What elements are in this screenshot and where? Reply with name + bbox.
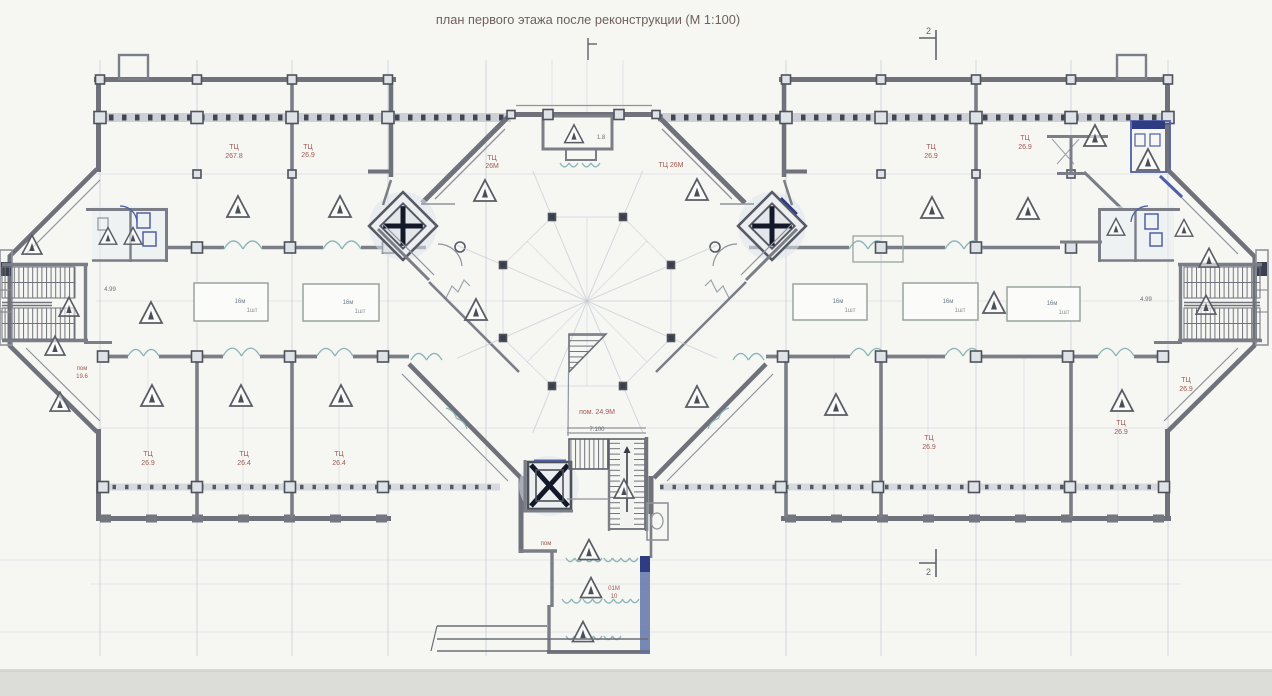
svg-text:26.4: 26.4 xyxy=(332,460,346,467)
svg-text:19.6: 19.6 xyxy=(76,374,88,380)
svg-text:ТЦ: ТЦ xyxy=(1181,377,1191,384)
svg-text:01М: 01М xyxy=(608,586,620,592)
svg-text:ТЦ: ТЦ xyxy=(487,155,497,162)
svg-text:26.9: 26.9 xyxy=(924,153,938,160)
svg-text:26.9: 26.9 xyxy=(301,152,315,159)
svg-text:1шт: 1шт xyxy=(955,308,966,314)
svg-text:пом. 24.9М: пом. 24.9М xyxy=(579,409,615,416)
svg-text:1шт: 1шт xyxy=(845,308,856,314)
svg-text:26М: 26М xyxy=(485,163,499,170)
svg-text:7.100: 7.100 xyxy=(589,427,605,433)
svg-text:ТЦ: ТЦ xyxy=(303,144,313,151)
svg-text:26.9: 26.9 xyxy=(1114,429,1128,436)
svg-text:пом: пом xyxy=(541,541,552,547)
svg-text:ТЦ: ТЦ xyxy=(1020,135,1030,142)
svg-text:4.99: 4.99 xyxy=(1140,297,1152,303)
svg-text:16м: 16м xyxy=(235,299,246,305)
svg-text:ТЦ: ТЦ xyxy=(924,435,934,442)
svg-text:2: 2 xyxy=(926,26,931,36)
svg-text:16м: 16м xyxy=(943,299,954,305)
svg-text:1шт: 1шт xyxy=(355,309,366,315)
svg-text:267.8: 267.8 xyxy=(225,153,243,160)
svg-text:4.99: 4.99 xyxy=(104,287,116,293)
svg-text:ТЦ: ТЦ xyxy=(334,451,344,458)
svg-text:ТЦ 26М: ТЦ 26М xyxy=(658,162,683,169)
svg-text:16м: 16м xyxy=(833,299,844,305)
svg-text:ТЦ: ТЦ xyxy=(1116,420,1126,427)
svg-text:26.9: 26.9 xyxy=(1018,144,1032,151)
svg-text:ТЦ: ТЦ xyxy=(229,144,239,151)
svg-text:26.9: 26.9 xyxy=(922,444,936,451)
svg-text:1шт: 1шт xyxy=(247,308,258,314)
svg-text:2: 2 xyxy=(926,567,931,577)
svg-text:ТЦ: ТЦ xyxy=(239,451,249,458)
svg-text:26.9: 26.9 xyxy=(141,460,155,467)
svg-text:ТЦ: ТЦ xyxy=(143,451,153,458)
svg-text:26.4: 26.4 xyxy=(237,460,251,467)
svg-text:план первого этажа после рекон: план первого этажа после реконструкции (… xyxy=(436,12,740,27)
svg-text:пом: пом xyxy=(77,366,88,372)
svg-text:16м: 16м xyxy=(343,300,354,306)
svg-text:16м: 16м xyxy=(1047,301,1058,307)
svg-text:ТЦ: ТЦ xyxy=(926,144,936,151)
svg-text:1.8: 1.8 xyxy=(597,135,606,141)
svg-text:1шт: 1шт xyxy=(1059,310,1070,316)
svg-text:10: 10 xyxy=(611,594,618,600)
svg-text:26.9: 26.9 xyxy=(1179,386,1193,393)
